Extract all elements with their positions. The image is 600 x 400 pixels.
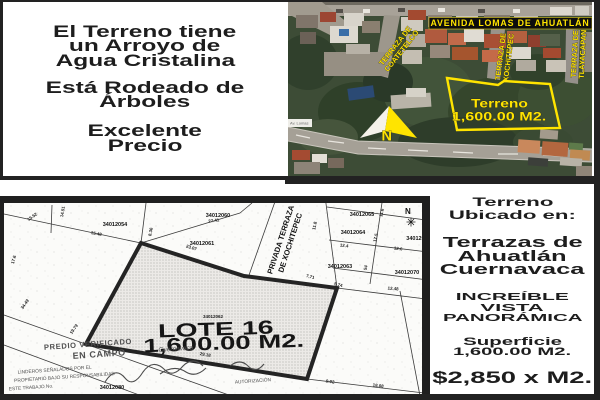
svg-text:34012054: 34012054 bbox=[103, 222, 128, 228]
svg-text:N: N bbox=[382, 129, 392, 145]
svg-text:N: N bbox=[405, 207, 411, 216]
svg-text:34012062: 34012062 bbox=[203, 314, 224, 319]
svg-text:34012064: 34012064 bbox=[341, 230, 366, 236]
svg-text:34012065: 34012065 bbox=[350, 212, 374, 218]
svg-text:34012080: 34012080 bbox=[100, 385, 124, 391]
svg-text:Av. Lomas: Av. Lomas bbox=[290, 121, 309, 126]
svg-text:Terreno: Terreno bbox=[471, 96, 528, 110]
svg-text:AVENIDA LOMAS DE AHUATLÁN: AVENIDA LOMAS DE AHUATLÁN bbox=[430, 18, 589, 28]
svg-text:12.48: 12.48 bbox=[387, 286, 399, 292]
svg-text:34012063: 34012063 bbox=[328, 264, 352, 270]
svg-text:1,600.00 M2.: 1,600.00 M2. bbox=[452, 110, 547, 123]
svg-text:12.4: 12.4 bbox=[340, 243, 350, 249]
svg-text:12.6: 12.6 bbox=[394, 246, 404, 252]
svg-text:34012070: 34012070 bbox=[395, 270, 419, 276]
